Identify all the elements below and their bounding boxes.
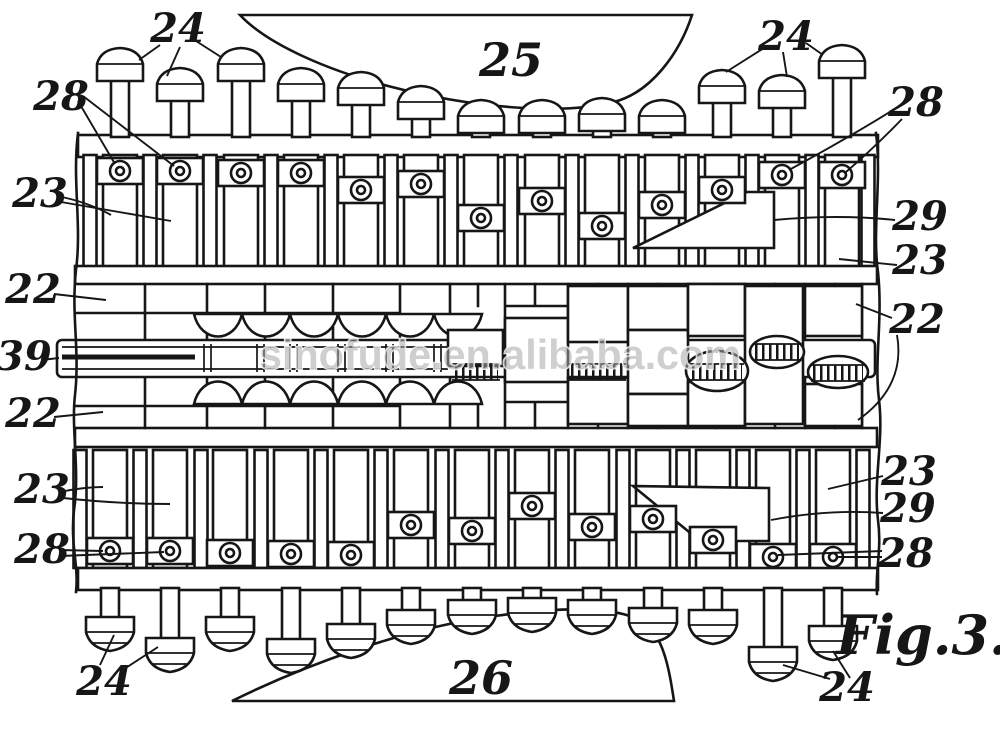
- needle-bar: [455, 450, 489, 568]
- screw-bracket: [519, 188, 565, 214]
- ref-label-24: 24: [75, 658, 132, 705]
- spacer-bar: [617, 450, 630, 568]
- ref-label-39: 39: [0, 333, 52, 380]
- ref-label-23: 23: [13, 466, 70, 513]
- spacer-bar: [204, 155, 217, 268]
- screw-bracket: [147, 538, 193, 564]
- ref-label-29: 29: [891, 193, 948, 240]
- needle-bar: [575, 450, 609, 568]
- screw-bracket: [218, 160, 264, 186]
- top-needle-rail: [78, 135, 878, 157]
- spacer-bar: [626, 155, 639, 268]
- screw-bracket: [388, 512, 434, 538]
- screw-bracket: [338, 177, 384, 203]
- screw-bracket: [569, 514, 615, 540]
- spacer-bar: [797, 450, 810, 568]
- ref-label-23: 23: [11, 170, 68, 217]
- spacer-bar: [84, 155, 97, 268]
- ref-label-24: 24: [149, 5, 206, 52]
- spacer-bar: [385, 155, 398, 268]
- spacer-bar: [134, 450, 147, 568]
- spacer-bar: [505, 155, 518, 268]
- patent-drawing-fig3: 24 25 24 28 28 23 29 23 22 22 39 22 23 2…: [0, 0, 1000, 743]
- cam-disc: [808, 356, 868, 388]
- ref-label-28: 28: [877, 530, 934, 577]
- screw-bracket: [449, 518, 495, 544]
- screw-bracket: [639, 192, 685, 218]
- spacer-bar: [325, 155, 338, 268]
- screw-bracket: [268, 541, 314, 567]
- spacer-bar: [496, 450, 509, 568]
- ref-label-26: 26: [448, 651, 513, 705]
- needle-bar: [344, 155, 378, 268]
- ref-label-24: 24: [757, 13, 814, 60]
- needle-bar: [394, 450, 428, 568]
- needle-bar: [585, 155, 619, 268]
- ref-label-24: 24: [818, 664, 875, 711]
- ref-label-25: 25: [478, 33, 543, 87]
- screw-bracket: [207, 540, 253, 566]
- ref-label-28: 28: [887, 79, 944, 126]
- spacer-bar: [566, 155, 579, 268]
- ref-label-28: 28: [13, 526, 70, 573]
- screw-bracket: [97, 158, 143, 184]
- spacer-bar: [144, 155, 157, 268]
- ref-label-28: 28: [32, 73, 89, 120]
- spacer-bar: [857, 450, 870, 568]
- spacer-bar: [265, 155, 278, 268]
- screw-bracket: [819, 162, 865, 188]
- spacer-bar: [195, 450, 208, 568]
- ref-label-22: 22: [888, 296, 945, 343]
- screw-bracket: [750, 544, 796, 570]
- screw-bracket: [509, 493, 555, 519]
- screw-bracket: [398, 171, 444, 197]
- spacer-bar: [315, 450, 328, 568]
- spacer-bar: [686, 155, 699, 268]
- watermark-text: sinofude.en.alibaba.com: [259, 331, 741, 378]
- ref-label-23: 23: [891, 237, 948, 284]
- screw-bracket: [328, 542, 374, 568]
- spacer-bar: [556, 450, 569, 568]
- spacer-bar: [255, 450, 268, 568]
- ref-label-22: 22: [4, 390, 61, 437]
- screw-bracket: [630, 506, 676, 532]
- spacer-bar: [445, 155, 458, 268]
- spacer-bar: [436, 450, 449, 568]
- ref-label-29: 29: [879, 485, 936, 532]
- spacer-bar: [375, 450, 388, 568]
- screw-bracket: [579, 213, 625, 239]
- patent-figure-page: 24 25 24 28 28 23 29 23 22 22 39 22 23 2…: [0, 0, 1000, 743]
- ref-label-22: 22: [4, 266, 61, 313]
- screw-bracket: [699, 177, 745, 203]
- screw-bracket: [157, 158, 203, 184]
- figure-caption: Fig.3.: [834, 603, 1000, 667]
- screw-bracket: [278, 160, 324, 186]
- spacer-bar: [806, 155, 819, 268]
- screw-bracket: [690, 527, 736, 553]
- screw-bracket: [458, 205, 504, 231]
